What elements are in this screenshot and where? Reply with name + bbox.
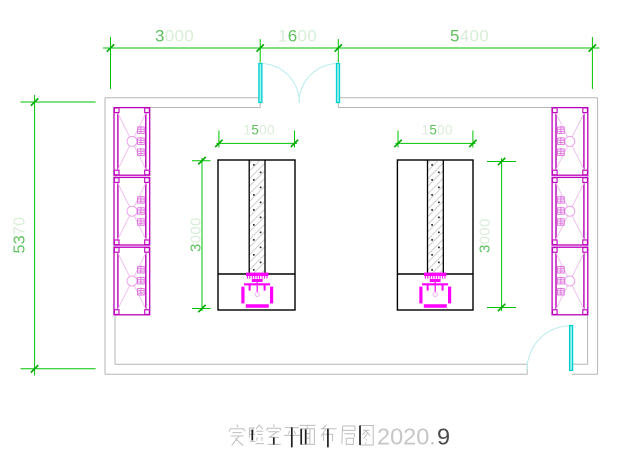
svg-text:9: 9 xyxy=(437,424,450,450)
svg-text:1500: 1500 xyxy=(244,123,275,138)
svg-text:5370: 5370 xyxy=(11,217,28,254)
svg-text:2020.: 2020. xyxy=(377,424,436,450)
svg-text:1500: 1500 xyxy=(422,123,453,138)
svg-text:5400: 5400 xyxy=(450,27,489,46)
svg-text:1600: 1600 xyxy=(278,27,317,46)
svg-text:3000: 3000 xyxy=(476,218,493,253)
svg-text:3000: 3000 xyxy=(155,27,194,46)
svg-text:3000: 3000 xyxy=(187,217,204,252)
